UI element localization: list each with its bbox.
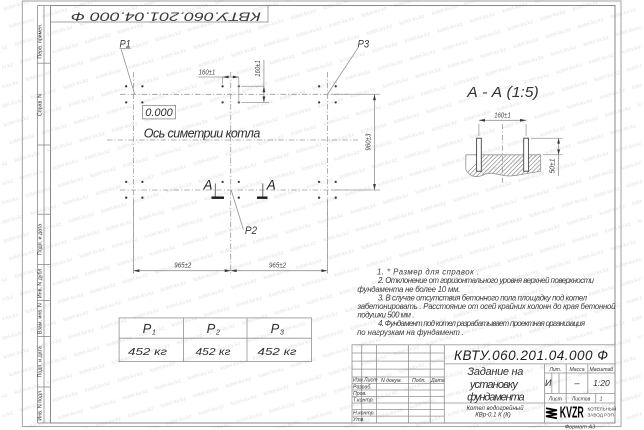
svg-text:Разраб.: Разраб. [353, 384, 372, 390]
svg-text:Лист: Лист [548, 397, 562, 403]
svg-text:КВТУ.060.201.04.000 Ф: КВТУ.060.201.04.000 Ф [454, 348, 608, 363]
svg-text:А: А [203, 178, 213, 193]
svg-text:50±1: 50±1 [547, 159, 556, 174]
svg-text:Подп. и дата: Подп. и дата [38, 346, 44, 377]
svg-text:Взам. инв. N: Взам. инв. N [38, 303, 44, 334]
svg-text:Лит.: Лит. [548, 367, 561, 373]
svg-text:0.000: 0.000 [145, 107, 173, 119]
svg-text:КОТЕЛЬНЫЙ: КОТЕЛЬНЫЙ [588, 404, 617, 411]
svg-text:1: 1 [600, 397, 603, 403]
svg-text:452 кг: 452 кг [258, 346, 297, 358]
svg-text:Т.контр.: Т.контр. [353, 397, 374, 403]
svg-text:Пров.: Пров. [353, 391, 367, 397]
svg-text:160±1: 160±1 [199, 68, 216, 77]
svg-text:Инв. N дубл.: Инв. N дубл. [38, 267, 44, 298]
svg-text:А: А [266, 178, 276, 193]
svg-text:KVZR: KVZR [560, 404, 584, 421]
svg-text:160±1: 160±1 [253, 60, 262, 77]
svg-text:Подп. и дата: Подп. и дата [38, 224, 44, 255]
svg-text:Котел водогрейный: Котел водогрейный [466, 405, 524, 412]
svg-text:по нагрузкам на фундамент .: по нагрузкам на фундамент . [357, 328, 464, 337]
svg-text:965±2: 965±2 [174, 261, 191, 270]
svg-text:Утв.: Утв. [353, 417, 365, 423]
svg-text:фундамента: фундамента [467, 391, 525, 403]
svg-text:452 кг: 452 кг [128, 346, 167, 358]
svg-text:Н.контр.: Н.контр. [353, 411, 375, 417]
svg-text:Р: Р [143, 321, 152, 336]
svg-text:Листов: Листов [571, 397, 591, 403]
svg-text:–: – [573, 378, 580, 388]
svg-text:1: 1 [152, 330, 156, 337]
svg-text:установку: установку [469, 379, 520, 391]
svg-text:452 кг: 452 кг [196, 346, 231, 358]
svg-text:2: 2 [215, 330, 220, 337]
svg-text:Подп.: Подп. [412, 378, 426, 384]
svg-text:Задание на: Задание на [467, 366, 523, 378]
svg-text:Р: Р [207, 321, 216, 336]
svg-text:Р: Р [271, 321, 280, 336]
svg-text:1:20: 1:20 [593, 378, 610, 388]
svg-text:Масштаб: Масштаб [590, 367, 615, 373]
svg-text:И: И [545, 378, 552, 388]
svg-text:965±2: 965±2 [269, 261, 286, 270]
svg-text:Перв. примен.: Перв. примен. [38, 23, 44, 58]
svg-text:Р3: Р3 [358, 38, 370, 50]
svg-text:Дата: Дата [430, 378, 445, 384]
svg-text:Ось симетрии котла: Ось симетрии котла [144, 126, 261, 140]
svg-text:Справ. N: Справ. N [38, 94, 44, 116]
svg-text:Формат А3: Формат А3 [565, 424, 596, 430]
svg-text:3: 3 [280, 330, 284, 337]
svg-text:Изм.Лист: Изм.Лист [353, 378, 378, 384]
svg-text:КВТУ.060.201.04.000 Ф: КВТУ.060.201.04.000 Ф [71, 10, 261, 22]
svg-text:Масса: Масса [569, 367, 584, 373]
svg-text:КВр-0,1 К (К): КВр-0,1 К (К) [475, 413, 511, 419]
svg-text:ЗАВОД РЭП: ЗАВОД РЭП [588, 412, 614, 417]
svg-text:Инв. N подл.: Инв. N подл. [38, 389, 44, 420]
svg-text:960±3: 960±3 [364, 133, 373, 151]
svg-text:А - А (1:5): А - А (1:5) [466, 84, 539, 101]
svg-text:160±1: 160±1 [494, 110, 511, 119]
svg-text:Р2: Р2 [245, 225, 257, 237]
svg-text:N докум.: N докум. [381, 378, 402, 384]
